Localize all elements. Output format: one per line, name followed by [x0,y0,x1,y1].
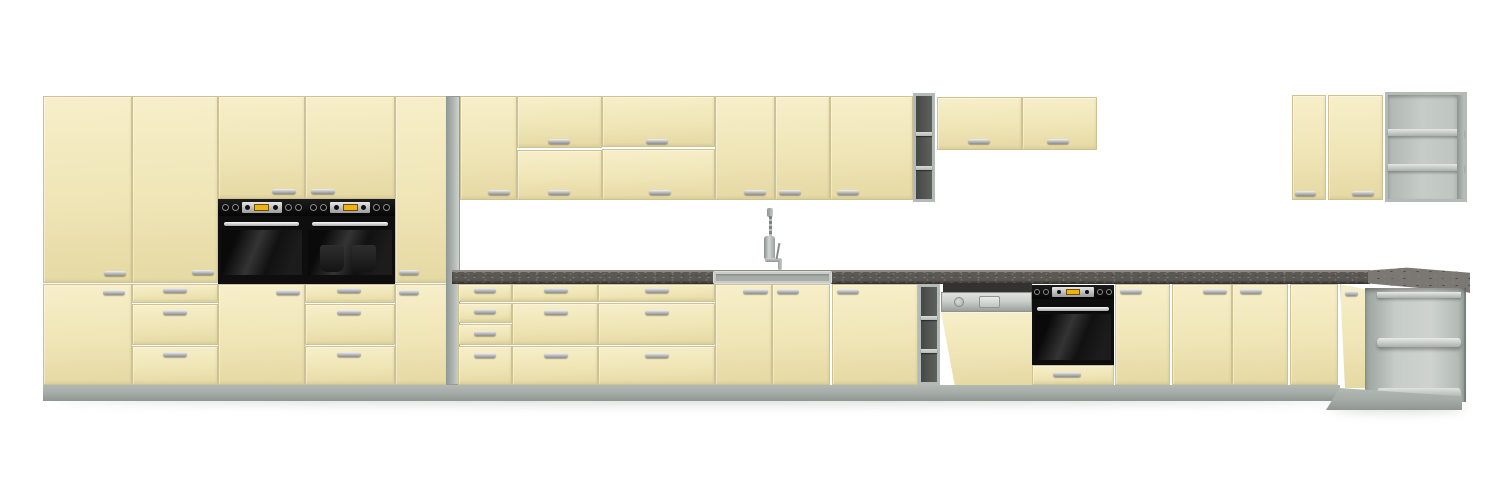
oven-door-handle [312,222,388,226]
wall-flap-2-bottom [517,150,602,200]
base-drawer-c1 [598,284,715,302]
drawer-handle [163,310,187,315]
base-drawer-b1 [512,284,598,302]
tall-door-2-upper [132,96,218,283]
tap-body [764,236,775,260]
drawer-handle [474,353,496,358]
door-handle [104,271,126,276]
drawer-handle [474,331,496,336]
base-drawer-a1 [458,284,512,302]
cup-in-oven [320,245,344,272]
dishwasher-button [979,296,1000,308]
oven-knob [285,204,292,211]
base-open-shelf-column [918,284,940,385]
cup-in-oven [352,245,376,272]
door-handle [1203,289,1227,294]
tall-col2-drawer-1 [132,284,218,303]
door-handle [399,290,419,295]
drawer-handle [337,288,361,293]
built-in-oven-right [305,199,395,284]
tall-col4-drawer-2 [305,304,395,345]
door-handle [777,289,799,294]
wall-door-5 [775,96,830,200]
wall-flap-3-top [602,96,715,147]
shelf [1388,164,1464,171]
base-drawer-a3 [458,324,512,345]
angled-corner-door [1340,284,1366,388]
door-handle [646,139,668,144]
corner-wall-door-2 [1328,95,1383,200]
drawer-handle [645,288,669,293]
tall-col4-drawer-1 [305,284,395,303]
oven-display [343,204,358,211]
drawer-handle [645,310,669,315]
door-handle [837,190,859,195]
oven-knob [232,204,239,211]
wall-door-4 [715,96,775,200]
sink-base-door-right [772,284,830,385]
tap-spout-drop [778,260,782,270]
door-handle [488,190,510,195]
dishwasher-control-strip [941,292,1032,312]
oven-door-glass [221,230,302,275]
tap-hose [769,216,772,238]
oven-knob [295,204,302,211]
base-door-8 [1172,284,1232,385]
oven-knob [373,204,380,211]
shelf [1388,129,1464,136]
drawer-handle [544,353,568,358]
oven-knob [320,204,327,211]
oven-control-panel [305,199,395,216]
door-handle [1345,291,1358,296]
base-door-7 [1115,284,1170,385]
shelf [916,132,932,136]
oven-knob [1097,289,1103,295]
tall-col2-drawer-3 [132,346,218,385]
drawer-handle [645,353,669,358]
door-handle [649,190,671,195]
shelf [916,166,932,170]
oven-base-drawer [1032,365,1114,385]
oven-door-handle [1037,307,1109,311]
base-door-9 [1232,284,1288,385]
tall-col2-drawer-2 [132,304,218,345]
drawer-handle [544,310,568,315]
button [334,205,339,210]
wall-open-shelf-column [913,93,935,202]
tall-door-1-lower [43,284,132,385]
shelf [921,349,937,353]
door-handle [743,289,768,294]
oven-knob [1106,289,1112,295]
oven-door-handle [224,222,299,226]
base-drawer-c2 [598,303,715,345]
oven-knob [310,204,317,211]
button [1057,290,1061,294]
oven-door [1032,299,1114,365]
drawer-handle [474,309,496,314]
door-handle [779,190,801,195]
door-handle [837,289,859,294]
tall-door-5-lower [395,284,448,385]
button [1085,290,1089,294]
drawer-handle [337,352,361,357]
door-handle [192,270,214,275]
door-handle [399,270,419,275]
oven-control-panel [218,199,305,216]
sink-base-door-left [715,284,772,385]
drawer-handle [163,288,187,293]
door-handle [548,190,570,195]
oven-housing-2-top-door [305,96,395,199]
drawer-handle [1053,372,1081,377]
drawer-handle [544,288,568,293]
door-handle [1047,139,1069,144]
wall-flap-2-top [517,96,602,148]
tall-col4-drawer-3 [305,346,395,385]
base-drawer-b3 [512,346,598,385]
wall-door-6 [830,96,913,200]
oven-display-plate [330,202,370,213]
shelf [1377,338,1461,347]
shelf-side-panel [1457,95,1464,199]
plinth-main [43,385,1340,401]
door-handle [1352,191,1374,196]
wall-flap-3-bottom [602,149,715,200]
oven-door-glass [1035,314,1111,360]
tall-door-1-upper [43,96,132,283]
door-handle [968,139,990,144]
drawer-handle [163,352,187,357]
base-door-6 [832,284,918,385]
oven-display-plate [1052,287,1094,297]
oven-knob [1043,289,1049,295]
dishwasher-dial [954,297,964,307]
door-handle [1295,191,1316,196]
base-drawer-c3 [598,346,715,385]
tall-door-5-upper [395,96,448,283]
door-handle [103,290,125,295]
kitchen-cabinet-set-render [0,0,1500,497]
built-in-oven-left [218,199,305,284]
door-handle [276,290,300,295]
wall-door-1 [460,96,517,200]
door-handle [1240,289,1262,294]
shelf [921,316,937,320]
countertop-main [452,270,1370,284]
oven-knob [1034,289,1040,295]
tap-lever [776,243,781,259]
shelf-top-rail [1377,292,1461,298]
corner-open-base-unit [1365,288,1466,402]
oven-control-panel [1032,285,1114,299]
door-handle [548,139,570,144]
drawer-handle [337,310,361,315]
corner-wall-door-1 [1292,95,1326,200]
base-blind-door [1290,284,1338,385]
corner-wall-open-shelf [1385,92,1467,202]
oven-housing-1-top-door [218,96,305,199]
sink [713,271,832,284]
dishwasher-furniture-panel [941,312,1032,385]
oven-knob [383,204,390,211]
oven-display-plate [242,202,282,213]
wall-short-door-2 [1022,97,1097,150]
dishwasher-top-slot [943,283,1032,292]
button [273,205,278,210]
button [245,205,250,210]
oven-display [1066,289,1080,295]
door-handle [744,190,766,195]
oven-knob [222,204,229,211]
base-drawer-a2 [458,303,512,323]
oven-display [254,204,269,211]
door-handle [311,189,335,194]
drawer-handle [474,288,496,293]
door-handle [1120,289,1142,294]
door-handle [272,189,296,194]
oven-housing-1-bottom-door [218,284,305,385]
wall-short-door-1 [937,97,1022,150]
base-drawer-a4 [458,346,512,385]
button [361,205,366,210]
base-drawer-b2 [512,303,598,345]
